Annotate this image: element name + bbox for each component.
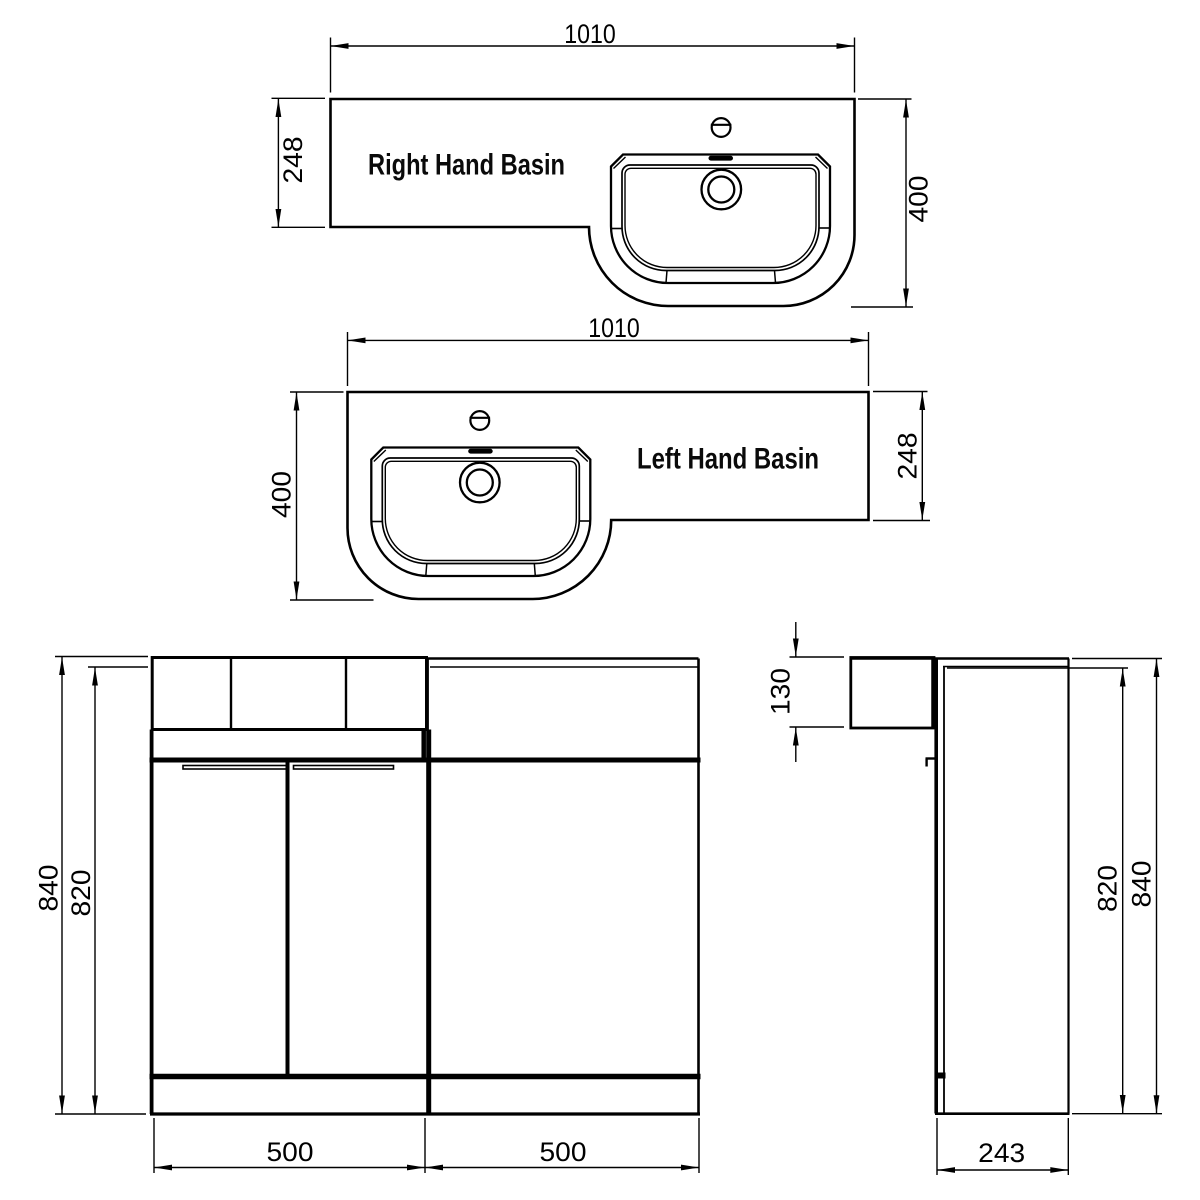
svg-text:248: 248 <box>278 137 308 184</box>
svg-text:820: 820 <box>66 870 96 917</box>
svg-text:Left Hand Basin: Left Hand Basin <box>637 443 819 476</box>
svg-text:820: 820 <box>1093 865 1123 912</box>
svg-text:1010: 1010 <box>588 313 640 343</box>
svg-text:500: 500 <box>267 1137 314 1167</box>
svg-text:243: 243 <box>978 1138 1025 1168</box>
svg-text:248: 248 <box>893 433 923 480</box>
svg-text:400: 400 <box>904 176 934 223</box>
svg-text:1010: 1010 <box>564 19 616 49</box>
svg-text:130: 130 <box>766 668 796 715</box>
svg-text:840: 840 <box>1127 861 1157 908</box>
svg-text:Right Hand Basin: Right Hand Basin <box>368 149 565 182</box>
svg-text:840: 840 <box>34 865 64 912</box>
svg-text:500: 500 <box>540 1137 587 1167</box>
svg-text:400: 400 <box>267 471 297 518</box>
